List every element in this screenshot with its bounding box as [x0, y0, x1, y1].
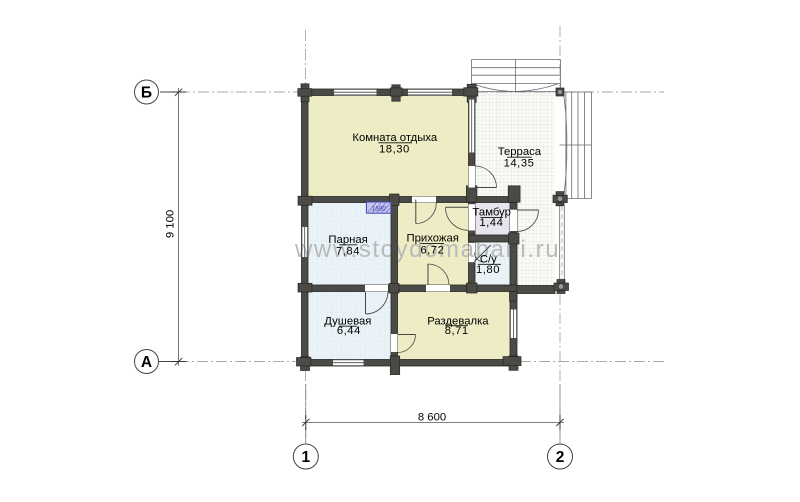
svg-text:1: 1 — [301, 449, 310, 466]
svg-text:www.stoydomabani.ru: www.stoydomabani.ru — [294, 236, 560, 263]
svg-text:Б: Б — [141, 85, 152, 102]
svg-text:1,44: 1,44 — [479, 217, 503, 229]
svg-text:8,71: 8,71 — [445, 325, 469, 337]
svg-text:9 100: 9 100 — [165, 210, 177, 238]
svg-text:14,35: 14,35 — [504, 158, 535, 170]
svg-text:2: 2 — [556, 449, 565, 466]
svg-text:Комната отдыха: Комната отдыха — [352, 132, 437, 144]
svg-text:1,80: 1,80 — [476, 264, 500, 276]
svg-text:8 600: 8 600 — [418, 412, 446, 424]
svg-text:Терраса: Терраса — [498, 146, 542, 158]
svg-text:18,30: 18,30 — [379, 143, 410, 155]
svg-text:1500: 1500 — [371, 205, 387, 212]
svg-text:А: А — [141, 354, 152, 371]
svg-text:6,44: 6,44 — [337, 325, 361, 337]
